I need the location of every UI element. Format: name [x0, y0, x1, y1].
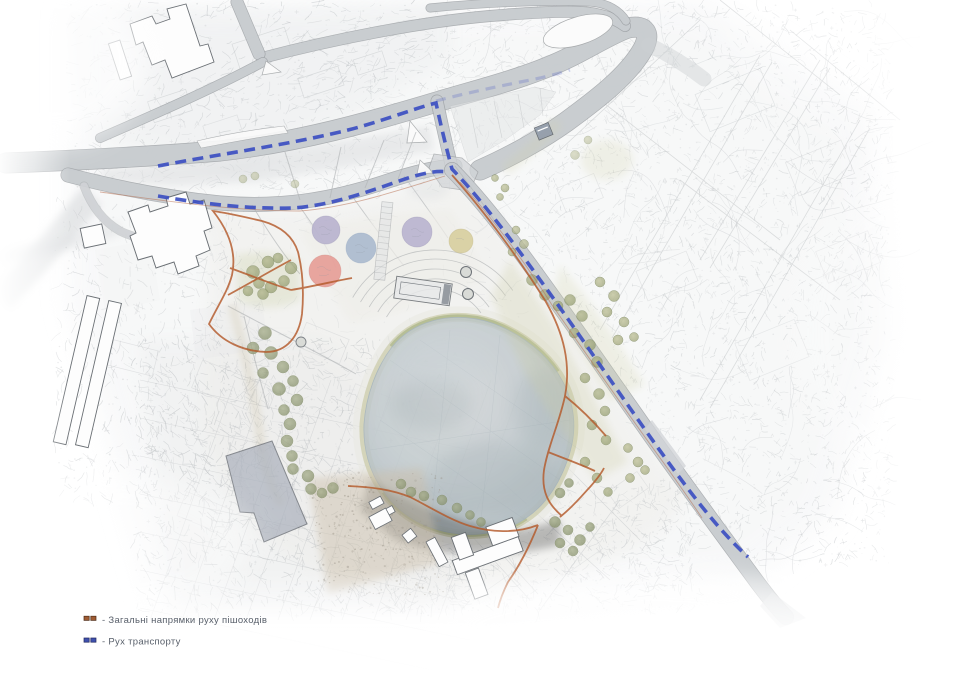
svg-text:- Рух транспорту: - Рух транспорту [102, 637, 181, 648]
svg-text:- Загальні напрямки руху пішох: - Загальні напрямки руху пішоходів [102, 615, 267, 626]
